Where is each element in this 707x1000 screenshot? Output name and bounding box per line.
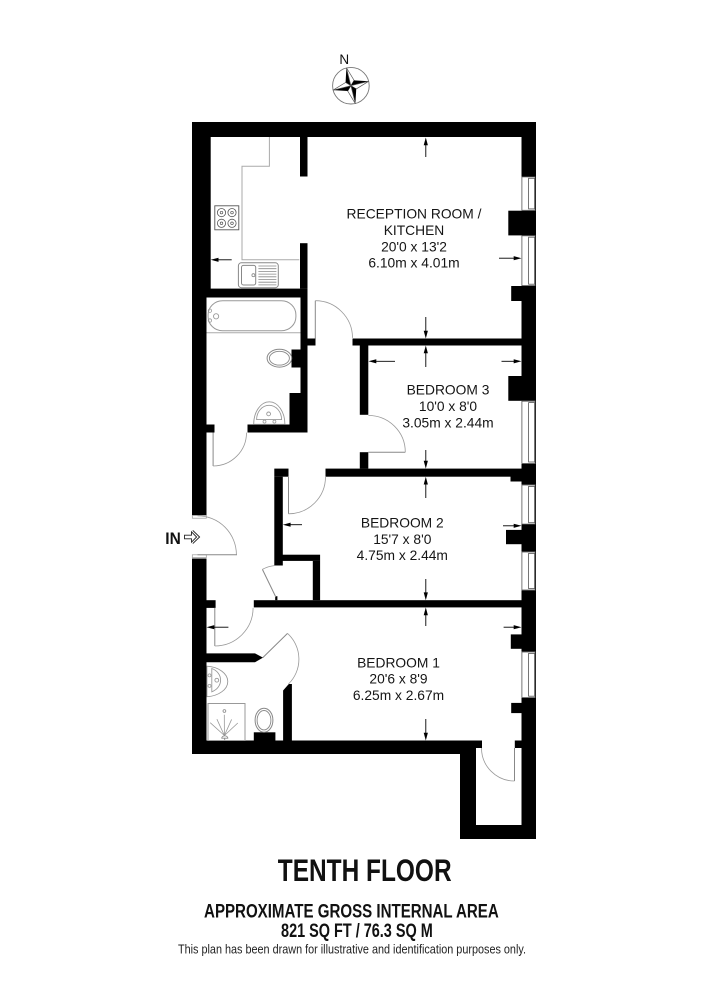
svg-text:TENTH FLOOR: TENTH FLOOR — [278, 852, 452, 888]
svg-text:RECEPTION ROOM /: RECEPTION ROOM / — [347, 207, 482, 222]
svg-text:BEDROOM 2: BEDROOM 2 — [361, 516, 444, 531]
svg-text:KITCHEN: KITCHEN — [384, 223, 445, 238]
svg-text:20'0 x 13'2: 20'0 x 13'2 — [381, 239, 447, 254]
svg-text:IN: IN — [165, 529, 181, 548]
svg-text:20'6 x 8'9: 20'6 x 8'9 — [369, 672, 428, 687]
svg-text:4.75m x 2.44m: 4.75m x 2.44m — [357, 548, 448, 563]
svg-text:N: N — [339, 52, 349, 67]
svg-text:6.10m x 4.01m: 6.10m x 4.01m — [368, 256, 459, 271]
svg-text:BEDROOM 3: BEDROOM 3 — [407, 383, 490, 398]
svg-text:10'0 x 8'0: 10'0 x 8'0 — [419, 399, 478, 414]
svg-text:This plan has been drawn for i: This plan has been drawn for illustrativ… — [178, 943, 526, 957]
svg-text:3.05m x 2.44m: 3.05m x 2.44m — [402, 416, 493, 431]
svg-text:BEDROOM 1: BEDROOM 1 — [357, 655, 440, 670]
svg-text:APPROXIMATE GROSS INTERNAL ARE: APPROXIMATE GROSS INTERNAL AREA — [204, 901, 499, 922]
svg-text:821 SQ FT / 76.3 SQ M: 821 SQ FT / 76.3 SQ M — [281, 921, 433, 942]
svg-text:15'7 x 8'0: 15'7 x 8'0 — [373, 532, 432, 547]
svg-text:6.25m x 2.67m: 6.25m x 2.67m — [353, 688, 444, 703]
